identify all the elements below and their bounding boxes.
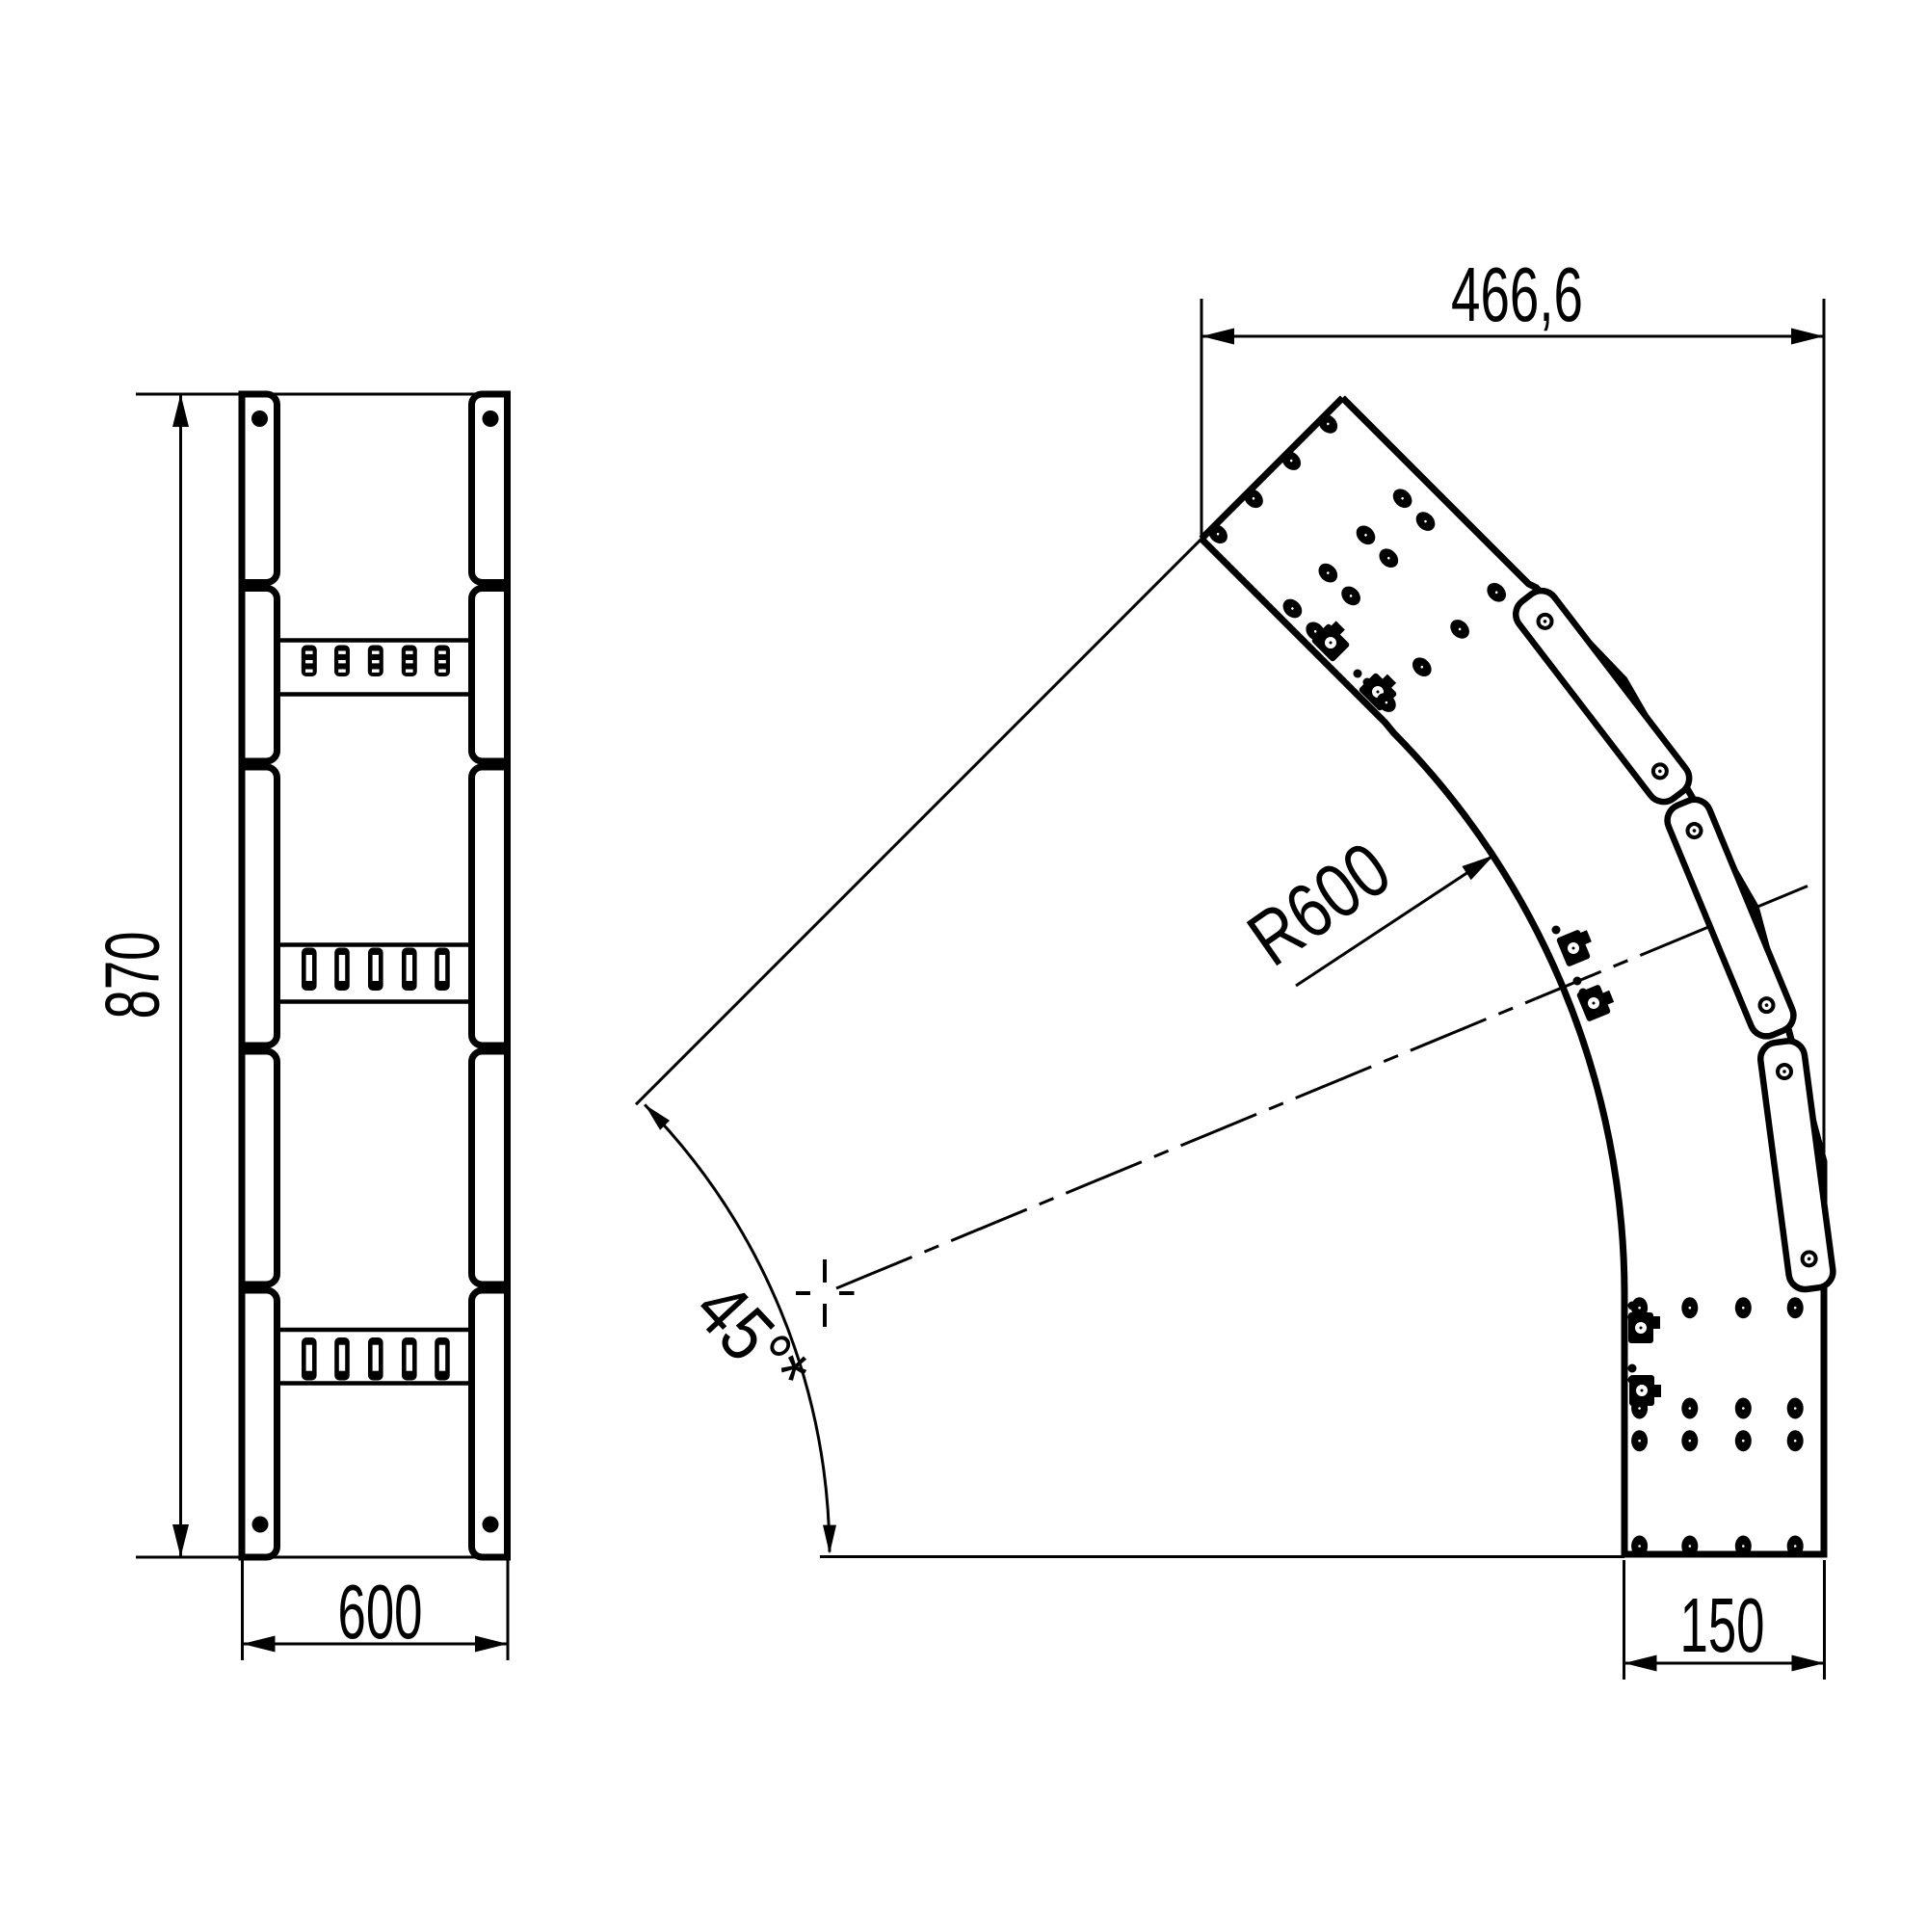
svg-text:870: 870: [90, 932, 175, 1019]
svg-text:600: 600: [338, 1569, 423, 1654]
svg-text:150: 150: [1680, 1582, 1765, 1668]
svg-text:466,6: 466,6: [1451, 251, 1583, 337]
